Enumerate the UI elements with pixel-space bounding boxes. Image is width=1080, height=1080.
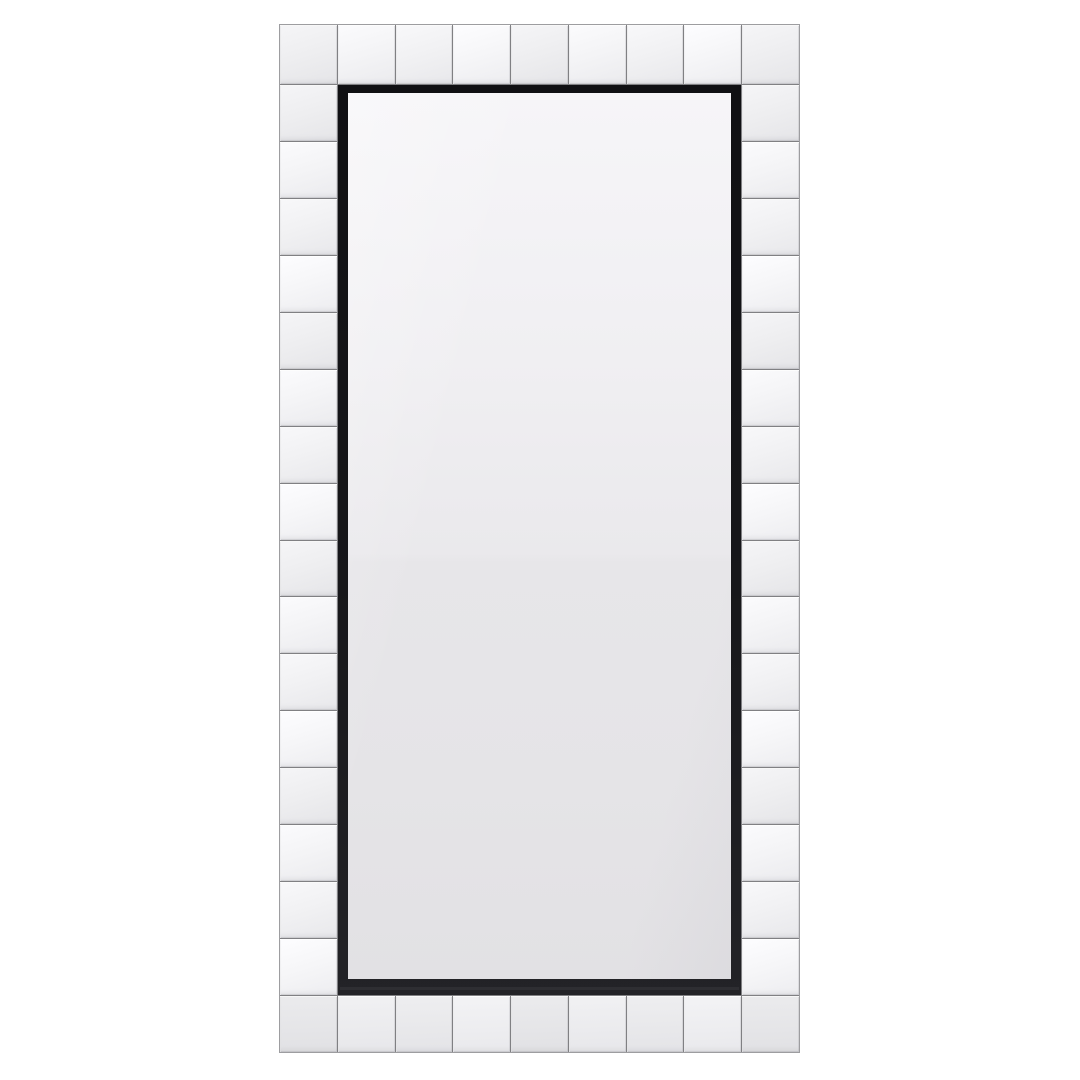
mosaic-tile [511,25,568,84]
mosaic-tile [742,313,799,369]
mosaic-tile [627,996,684,1052]
mosaic-tile [453,996,510,1052]
mosaic-tile [627,25,684,84]
mosaic-tile [280,711,337,767]
mosaic-tile [742,711,799,767]
mosaic-tile [742,484,799,540]
mosaic-tile [280,25,337,84]
tile-column-left [280,85,337,995]
mosaic-tile [280,654,337,710]
mosaic-tile [742,882,799,938]
mirror-glass [348,93,731,979]
mosaic-tile [742,25,799,84]
tile-row-top [280,25,799,84]
tile-row-bottom [280,996,799,1052]
mosaic-tile [742,597,799,653]
mosaic-tile [280,199,337,255]
mosaic-tile [280,882,337,938]
mosaic-tile [453,25,510,84]
mosaic-tile [280,313,337,369]
mosaic-tile [338,996,395,1052]
mosaic-tile [280,597,337,653]
mosaic-tile [742,654,799,710]
mosaic-tile [569,25,626,84]
mosaic-tile [280,427,337,483]
mosaic-tile [338,25,395,84]
mosaic-tile [742,939,799,995]
mosaic-tile [280,85,337,141]
mosaic-tile-mirror [280,25,799,1052]
mosaic-tile [280,256,337,312]
mosaic-tile [684,25,741,84]
mosaic-tile [280,484,337,540]
mosaic-tile [742,370,799,426]
mosaic-tile [742,142,799,198]
mosaic-tile [396,996,453,1052]
mosaic-tile [742,541,799,597]
mosaic-tile [280,541,337,597]
mosaic-tile [511,996,568,1052]
mosaic-tile [280,370,337,426]
inner-black-frame [338,85,741,995]
mosaic-tile [280,996,337,1052]
tile-column-right [742,85,799,995]
mosaic-tile [742,427,799,483]
mosaic-tile [280,825,337,881]
mosaic-tile [742,825,799,881]
mosaic-tile [569,996,626,1052]
mosaic-tile [742,996,799,1052]
mosaic-tile [742,768,799,824]
mosaic-tile [280,768,337,824]
mosaic-tile [742,85,799,141]
product-photo-canvas [0,0,1080,1080]
mosaic-tile [684,996,741,1052]
mosaic-tile [396,25,453,84]
mosaic-tile [742,199,799,255]
mosaic-tile [280,939,337,995]
mosaic-tile [280,142,337,198]
mosaic-tile [742,256,799,312]
